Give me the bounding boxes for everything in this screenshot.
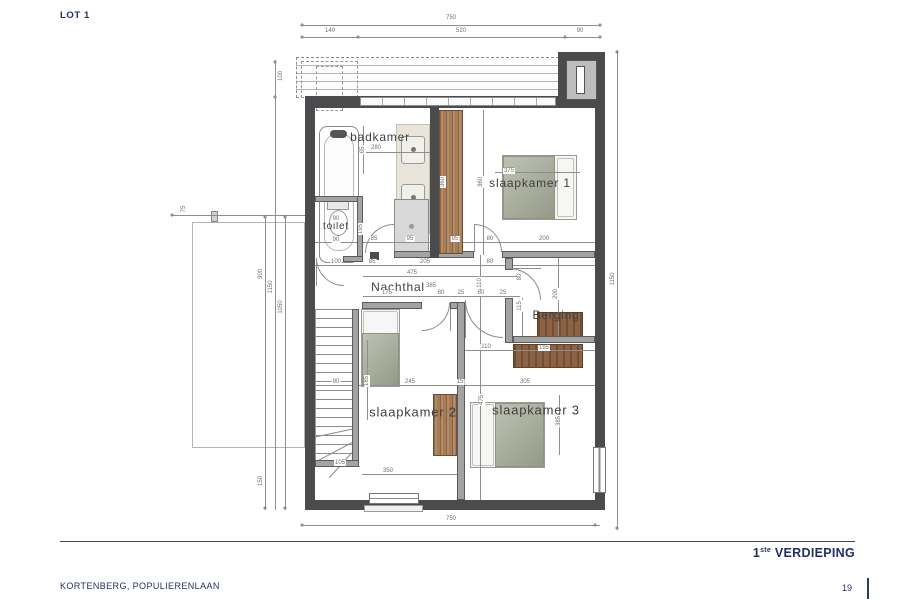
dimension-label: 205: [419, 259, 431, 265]
dimension-label: 150: [258, 475, 264, 487]
dimension-label: 185: [364, 375, 370, 387]
dimension-tick: [564, 36, 567, 39]
room-label: Berging: [533, 309, 580, 321]
dimension-label: 90: [332, 379, 341, 385]
dimension-label: 305: [519, 379, 531, 385]
interior-wall: [352, 309, 359, 467]
dimension-label: 110: [477, 277, 483, 289]
dimension-label: 15: [456, 379, 465, 385]
dimension-tick: [616, 51, 619, 54]
interior-wall: [362, 302, 422, 309]
dimension-label: 200: [538, 236, 550, 242]
dimension-line: [265, 215, 266, 510]
dimension-label: 90: [332, 237, 341, 243]
dimension-label: 195: [358, 223, 364, 235]
dimension-label: 360: [440, 176, 446, 188]
door-berging: [509, 268, 541, 300]
dimension-line: [394, 225, 395, 253]
dimension-label: 80: [437, 290, 446, 296]
dimension-label: 85: [368, 259, 377, 265]
dimension-label: 80: [486, 259, 495, 265]
dimension-label: 475: [406, 270, 418, 276]
dimension-tick: [284, 216, 287, 219]
dimension-tick: [357, 36, 360, 39]
floor-title-number: 1: [753, 546, 760, 560]
dimension-label: 80: [486, 236, 495, 242]
dimension-label: 360: [478, 176, 484, 188]
dimension-label: 385: [556, 415, 562, 427]
dimension-tick: [301, 36, 304, 39]
room-label: toilet: [323, 222, 349, 232]
floor-title: 1ste VERDIEPING: [753, 546, 855, 560]
interior-wall: [505, 298, 513, 343]
dimension-label: 105: [334, 460, 346, 466]
bathtub-faucet: [330, 130, 347, 138]
dimension-label: 80: [517, 273, 523, 282]
dimension-label: 85: [370, 236, 379, 242]
dimension-line: [302, 37, 600, 38]
dimension-label: 110: [480, 344, 492, 350]
door-slaapkamer3: [465, 300, 503, 338]
shower-drain: [409, 224, 414, 229]
bed-pillow: [472, 404, 494, 466]
dimension-label: 385: [425, 283, 437, 289]
floor-plan: badkamertoiletslaapkamer 1NachthalBergin…: [0, 0, 900, 600]
window-sill: [364, 505, 423, 512]
dimension-line: [465, 350, 595, 351]
dimension-tick: [171, 214, 174, 217]
dimension-label: 65: [360, 146, 366, 155]
floor-title-text: VERDIEPING: [771, 546, 855, 560]
footer-rule: [60, 541, 855, 542]
dimension-label: 750: [445, 516, 457, 522]
dimension-label: 80: [477, 290, 486, 296]
dimension-line: [315, 265, 595, 266]
exterior-wall: [430, 106, 439, 258]
dimension-line: [617, 50, 618, 530]
room-label: Nachthal: [371, 281, 425, 293]
dimension-line: [363, 296, 520, 297]
room-label: slaapkamer 1: [489, 177, 571, 189]
dimension-label: 115: [517, 300, 523, 312]
dimension-label: 100: [330, 259, 342, 265]
door-slaapkamer2: [422, 303, 450, 331]
dimension-label: 350: [382, 468, 394, 474]
dimension-tick: [301, 524, 304, 527]
dimension-label: 750: [445, 15, 457, 21]
exterior-wall: [305, 500, 605, 510]
dimension-label: 900: [258, 268, 264, 280]
dimension-tick: [264, 507, 267, 510]
dimension-label: 520: [455, 28, 467, 34]
dimension-label: 95: [451, 236, 460, 242]
dimension-tick: [599, 24, 602, 27]
dimension-label: 1150: [610, 272, 616, 287]
dimension-label: 175: [381, 290, 393, 296]
toilet-tank: [327, 201, 349, 210]
page-number: 19: [842, 583, 852, 593]
desk-slaapkamer2: [433, 394, 457, 456]
dimension-label: 1150: [268, 280, 274, 295]
dimension-label: 375: [503, 168, 515, 174]
dimension-label: 75: [181, 205, 187, 214]
dimension-line: [362, 474, 458, 475]
dimension-line: [285, 215, 286, 510]
dimension-line: [302, 25, 600, 26]
interior-wall: [457, 302, 465, 500]
dimension-label: 90: [332, 216, 341, 222]
drawing-page: LOT 1 badkamertoiletslaapkamer 1Nachthal…: [0, 0, 900, 600]
dimension-label: 25: [499, 290, 508, 296]
room-label: slaapkamer 2: [369, 406, 457, 419]
dimension-tick: [599, 36, 602, 39]
dimension-label: 245: [404, 379, 416, 385]
dimension-label: 95: [406, 236, 415, 242]
dimension-label: 280: [370, 145, 382, 151]
interior-wall: [513, 336, 595, 343]
dimension-label: 100: [278, 70, 284, 82]
room-label: slaapkamer 3: [492, 404, 580, 417]
dimension-tick: [594, 524, 597, 527]
interior-wall: [343, 256, 363, 262]
window-bottom: [369, 493, 419, 504]
bed-pillow: [363, 311, 398, 335]
wall-marker: [211, 211, 218, 222]
dimension-tick: [284, 507, 287, 510]
chimney-flue: [576, 66, 585, 94]
window-right: [593, 447, 606, 493]
footer-bar: [867, 578, 869, 599]
dimension-label: 140: [324, 28, 336, 34]
interior-wall: [315, 196, 363, 202]
dimension-tick: [301, 24, 304, 27]
dimension-tick: [264, 216, 267, 219]
dimension-label: 1050: [278, 299, 284, 314]
dimension-line: [275, 60, 276, 510]
exterior-wall: [305, 96, 315, 510]
dimension-line: [363, 276, 520, 277]
rooflight-band: [360, 97, 556, 106]
dimension-label: 475: [479, 394, 485, 406]
dimension-tick: [274, 61, 277, 64]
dimension-label: 195: [538, 345, 550, 351]
dimension-tick: [616, 527, 619, 530]
dimension-label: 90: [576, 28, 585, 34]
floor-title-sup: ste: [760, 547, 771, 554]
dimension-line: [302, 525, 600, 526]
dimension-line: [363, 152, 430, 153]
project-label: KORTENBERG, POPULIERENLAAN: [60, 581, 220, 591]
dimension-label: 200: [553, 288, 559, 300]
room-label: badkamer: [350, 131, 410, 143]
dimension-label: 25: [457, 290, 466, 296]
interior-wall: [502, 251, 595, 258]
lower-roof-outline: [192, 222, 305, 448]
dimension-tick: [274, 96, 277, 99]
